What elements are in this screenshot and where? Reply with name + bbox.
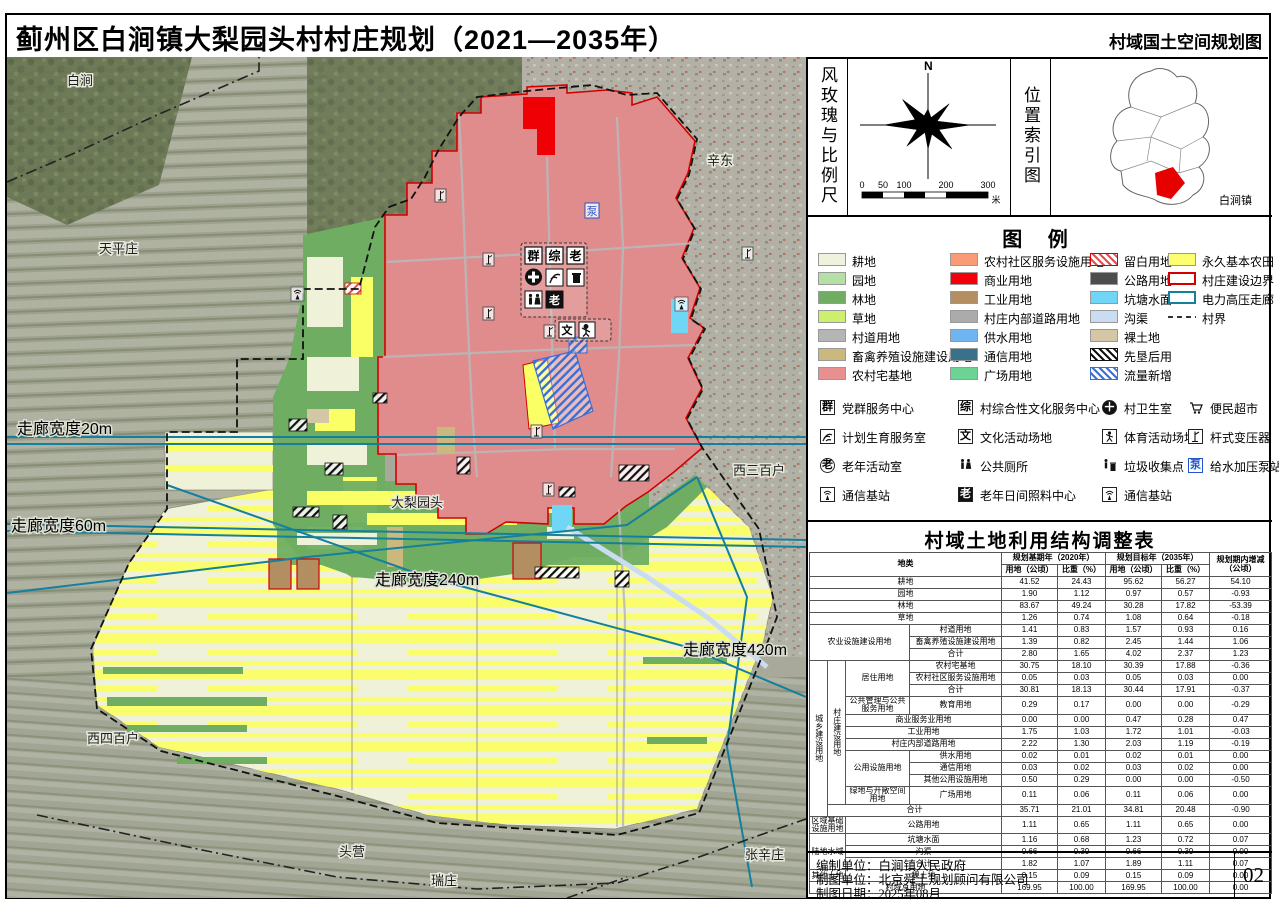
senior-room-icon: 老	[569, 248, 581, 263]
land-use-table: 地类 规划基期年（2020年） 规划目标年（2035年） 规划期内增减（公顷） …	[809, 552, 1272, 894]
table-row: 工业用地1.751.031.721.01-0.03	[810, 726, 1272, 738]
col-header: 规划目标年（2035年）	[1106, 553, 1210, 565]
shopping-cart-icon	[1188, 400, 1203, 415]
legend: 图 例 耕地 园地 林地 草地 村道用地 畜禽养殖设施建设用地 农村宅基地 农村…	[808, 215, 1272, 520]
place-label: 头营	[339, 844, 365, 859]
legend-title: 图 例	[808, 223, 1272, 252]
family-planning-icon	[820, 429, 835, 444]
col-header: 地类	[810, 553, 1002, 577]
culture-ground-icon: 文	[958, 429, 973, 444]
place-label: 天平庄	[99, 241, 138, 256]
town-label: 白涧镇	[1219, 193, 1252, 207]
table-row: 商业服务业用地0.000.000.470.280.47	[810, 714, 1272, 726]
col-header: 用地（公顷）	[1002, 565, 1058, 577]
corridor-label: 走廊宽度420m	[683, 641, 787, 659]
culture-service-icon: 综	[958, 400, 973, 415]
senior-room-icon: 老	[820, 458, 835, 473]
table-row: 草地1.260.741.080.64-0.18	[810, 613, 1272, 625]
table-row: 林地83.6749.2430.2817.82-53.39	[810, 601, 1272, 613]
table-row: 合计35.7121.0134.8120.48-0.90	[810, 804, 1272, 816]
credits-block: 编制单位：白涧镇人民政府 制图单位：北京舜土规划顾问有限公司 制图日期：2025…	[808, 851, 1272, 898]
table-row: 园地1.901.120.970.57-0.93	[810, 589, 1272, 601]
trash-icon	[572, 273, 581, 283]
svg-text:50: 50	[878, 180, 888, 190]
north-label: N	[924, 59, 933, 73]
scale-bar: 0 50 100 200 300 米	[859, 180, 1000, 205]
pump-station-icon: 泵	[1188, 458, 1203, 473]
info-panel: 风玫瑰与比例尺 N 0 50 100 200 300 米	[806, 57, 1272, 898]
title-bar: 蓟州区白涧镇大梨园头村村庄规划（2021—2035年） 村域国土空间规划图	[8, 15, 1268, 59]
table-row: 公共管理与公共服务用地教育用地0.290.170.000.00-0.29	[810, 697, 1272, 715]
corridor-label: 走廊宽度240m	[375, 571, 479, 589]
table-row: 村庄内部道路用地2.221.302.031.19-0.19	[810, 738, 1272, 750]
telecom-tower-icon	[1102, 487, 1117, 502]
col-header: 规划期内增减（公顷）	[1210, 553, 1272, 577]
svg-text:300: 300	[980, 180, 995, 190]
page-title: 蓟州区白涧镇大梨园头村村庄规划（2021—2035年）	[16, 18, 676, 57]
color-swatch	[818, 253, 846, 266]
sports-icon	[1102, 429, 1117, 444]
place-label: 张辛庄	[745, 847, 784, 862]
plan-sheet: 蓟州区白涧镇大梨园头村村庄规划（2021—2035年） 村域国土空间规划图	[0, 0, 1279, 905]
toilet-icon	[958, 458, 973, 473]
party-service-icon: 群	[820, 400, 835, 415]
clinic-icon: ＋	[1102, 400, 1117, 415]
trash-icon	[1102, 458, 1117, 473]
culture-ground-icon: 文	[562, 323, 574, 337]
sheet-subtitle: 村域国土空间规划图	[1109, 28, 1262, 53]
table-row: 公用设施用地供水用地0.020.010.020.010.00	[810, 750, 1272, 762]
svg-text:100: 100	[896, 180, 911, 190]
table-row: 区域基础设施用地公路用地1.110.651.110.650.00	[810, 816, 1272, 834]
land-use-table-panel: 村域土地利用结构调整表 地类 规划基期年（2020年） 规划目标年（2035年）…	[808, 520, 1272, 851]
place-label: 辛东	[707, 153, 733, 168]
location-index-panel-label: 位置索引图	[1011, 57, 1051, 215]
planning-map: 泵 群 综 老 老 文 白	[7, 57, 806, 898]
table-row: 绿地与开敞空间用地广场用地0.110.060.110.060.00	[810, 786, 1272, 804]
corridor-label: 走廊宽度20m	[17, 420, 112, 438]
place-label: 西四百户	[87, 731, 139, 746]
wind-rose-panel-label: 风玫瑰与比例尺	[808, 57, 848, 215]
table-row: 城乡建设用地村庄建设用地居住用地农村宅基地30.7518.1030.3917.8…	[810, 661, 1272, 673]
svg-text:200: 200	[938, 180, 953, 190]
pole-transformer-icon	[1188, 429, 1203, 444]
wind-rose-panel: N 0 50 100 200 300 米	[848, 57, 1011, 215]
daycare-icon: 老	[958, 487, 973, 502]
culture-service-icon: 综	[548, 248, 560, 263]
daycare-icon: 老	[548, 293, 560, 307]
col-header: 用地（公顷）	[1106, 565, 1162, 577]
svg-text:米: 米	[991, 194, 1000, 205]
col-header: 规划基期年（2020年）	[1002, 553, 1106, 565]
place-label: 白涧	[67, 73, 93, 88]
table-row: 陆地水域坑塘水面1.160.681.230.720.07	[810, 834, 1272, 846]
page-number: 02	[1234, 853, 1272, 898]
wind-rose	[884, 100, 970, 150]
corridor-label: 走廊宽度60m	[11, 517, 106, 535]
col-header: 比重（%）	[1058, 565, 1106, 577]
telecom-tower-icon	[820, 487, 835, 502]
table-row: 耕地41.5224.4395.6256.2754.10	[810, 577, 1272, 589]
map-canvas: 泵 群 综 老 老 文 白	[7, 57, 806, 898]
pump-station-icon: 泵	[585, 203, 599, 218]
place-label: 瑞庄	[431, 873, 457, 888]
credit-line: 制图日期：2025年08月	[816, 883, 941, 902]
place-label: 大梨园头	[391, 495, 443, 510]
table-title: 村域土地利用结构调整表	[808, 526, 1272, 553]
col-header: 比重（%）	[1162, 565, 1210, 577]
location-index-map: 白涧镇	[1051, 57, 1272, 215]
party-service-icon: 群	[526, 248, 539, 263]
table-row: 农业设施建设用地村道用地1.410.831.570.930.16	[810, 625, 1272, 637]
place-label: 西三百户	[733, 463, 785, 478]
svg-text:0: 0	[859, 180, 864, 190]
svg-text:泵: 泵	[587, 205, 598, 218]
